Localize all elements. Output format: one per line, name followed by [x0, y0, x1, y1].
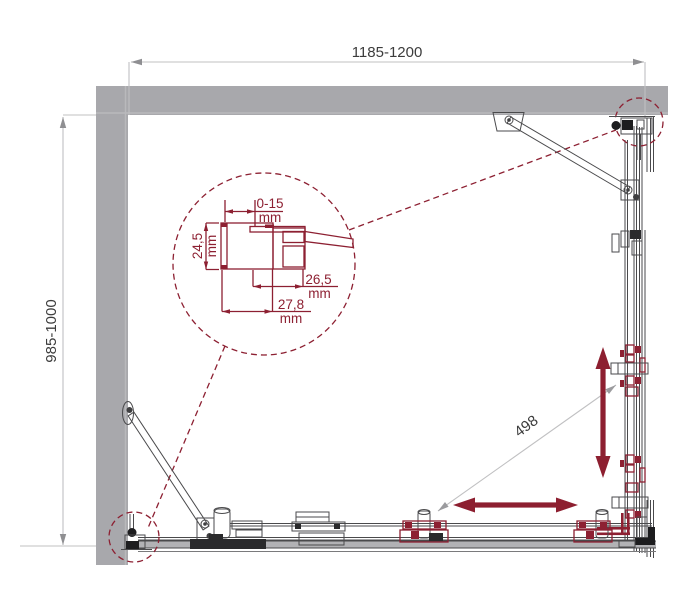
arrowhead-top	[60, 117, 66, 128]
leader-to-top-right	[349, 130, 616, 230]
adjustment-value: 0-15	[256, 196, 283, 211]
brace-bar	[507, 117, 630, 193]
screw-dot	[128, 528, 137, 537]
adjustment-unit: mm	[259, 210, 282, 225]
dimension-diagonal-opening: 498	[438, 385, 616, 511]
door-handle-plate	[612, 497, 648, 508]
walls	[96, 86, 668, 565]
slide-arrow-vertical	[596, 347, 611, 478]
inner-width-value: 26,5	[305, 272, 331, 287]
door-stopper-cylinder	[418, 511, 430, 538]
dim-depth-label: 985-1000	[43, 299, 60, 362]
arrowhead-left	[453, 498, 475, 513]
arrowhead-upper	[605, 385, 616, 394]
arrowhead-up	[596, 347, 611, 369]
detail-dim-outer-width: 27,8 mm	[222, 270, 311, 327]
arrowhead-down	[596, 456, 611, 478]
technical-drawing-canvas: 1185-1200 985-1000	[0, 0, 700, 612]
detail-dim-profile-depth: 24,5 mm	[190, 223, 219, 270]
profile-depth-value: 24,5	[190, 233, 205, 259]
detail-bubble	[109, 98, 663, 562]
plan-drawing: 1185-1200 985-1000	[0, 0, 700, 612]
inner-width-unit: mm	[308, 286, 331, 301]
roller-bottom-1	[190, 508, 266, 550]
dimension-depth: 985-1000	[20, 115, 96, 546]
arrowhead-lower	[438, 502, 449, 511]
dim-diagonal-label: 498	[511, 412, 541, 441]
glass-panel-edge	[305, 232, 353, 248]
arrowhead-bottom	[60, 534, 66, 545]
arrowhead-right	[633, 59, 644, 65]
arrowhead-left	[131, 59, 142, 65]
detail-dim-adjustment: 0-15 mm	[225, 196, 284, 226]
outer-width-unit: mm	[280, 311, 303, 326]
dim-width-label: 1185-1200	[352, 44, 423, 61]
wall-profile-top-right	[609, 117, 655, 161]
profile-cross-section	[221, 223, 353, 269]
leader-to-bottom-left	[148, 346, 225, 528]
profile-depth-unit: mm	[204, 235, 219, 258]
slide-arrow-horizontal	[453, 498, 578, 513]
support-brace-bottom-left	[123, 402, 215, 542]
screw-dot	[612, 121, 621, 130]
outer-width-value: 27,8	[278, 297, 304, 312]
arrowhead-right	[556, 498, 578, 513]
